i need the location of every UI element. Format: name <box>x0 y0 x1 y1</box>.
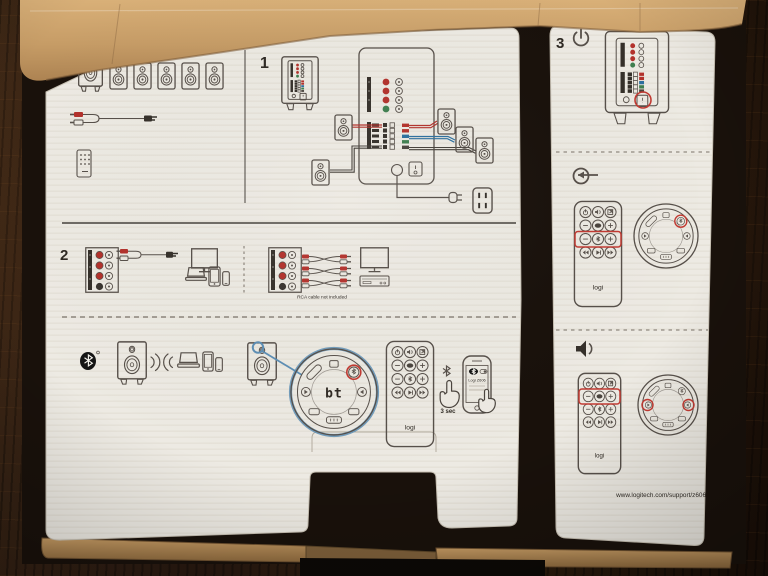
photo-of-speaker-box-instructions: logi <box>0 0 768 576</box>
box-scene: logi <box>0 0 768 576</box>
photo-vignette <box>0 0 768 576</box>
